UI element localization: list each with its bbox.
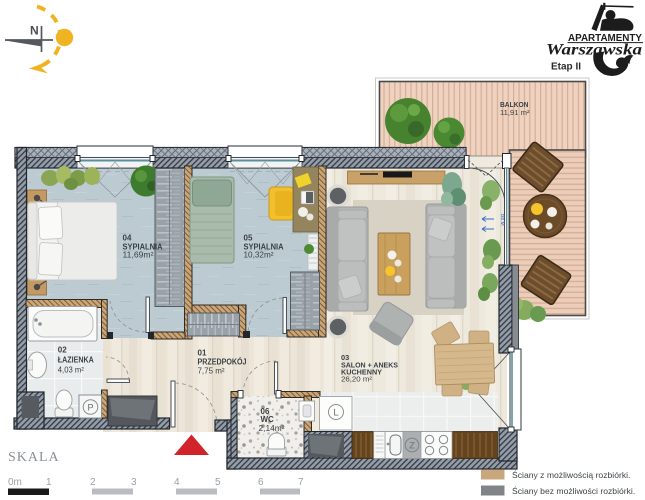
svg-text:10,32m²: 10,32m² (244, 251, 274, 260)
svg-text:Warszawska: Warszawska (546, 42, 642, 59)
svg-text:3: 3 (131, 477, 137, 488)
svg-text:04: 04 (123, 234, 132, 243)
svg-text:4,03 m²: 4,03 m² (58, 366, 84, 375)
svg-text:05: 05 (244, 234, 253, 243)
svg-text:26,20 m²: 26,20 m² (341, 375, 373, 384)
svg-text:0m: 0m (8, 477, 22, 488)
svg-text:5: 5 (215, 477, 221, 488)
svg-text:11,91 m²: 11,91 m² (500, 108, 530, 117)
svg-text:Etap II: Etap II (551, 62, 581, 73)
svg-text:Ściany bez możliwości rozbiórk: Ściany bez możliwości rozbiórki. (512, 485, 635, 496)
svg-text:WC: WC (261, 415, 275, 424)
svg-text:6: 6 (258, 477, 264, 488)
svg-text:4: 4 (174, 477, 180, 488)
svg-text:PRZEDPOKÓJ: PRZEDPOKÓJ (198, 357, 247, 366)
svg-text:7: 7 (298, 477, 304, 488)
svg-text:ŁAZIENKA: ŁAZIENKA (58, 356, 94, 365)
svg-text:01: 01 (198, 349, 207, 358)
svg-text:2,14m²: 2,14m² (259, 424, 285, 433)
svg-text:Ściany z możliwością rozbiórki: Ściany z możliwością rozbiórki. (512, 469, 630, 480)
svg-text:N: N (30, 24, 39, 38)
svg-text:L: L (333, 407, 338, 418)
svg-text:7,75 m²: 7,75 m² (198, 367, 225, 376)
svg-text:1: 1 (46, 477, 52, 488)
svg-text:02: 02 (58, 346, 67, 355)
svg-text:11,69m²: 11,69m² (123, 251, 154, 260)
svg-text:2: 2 (90, 477, 96, 488)
svg-text:Z: Z (409, 441, 415, 452)
svg-text:P: P (87, 402, 93, 412)
svg-text:Bb M: Bb M (499, 214, 505, 226)
svg-text:SKALA: SKALA (8, 450, 60, 465)
